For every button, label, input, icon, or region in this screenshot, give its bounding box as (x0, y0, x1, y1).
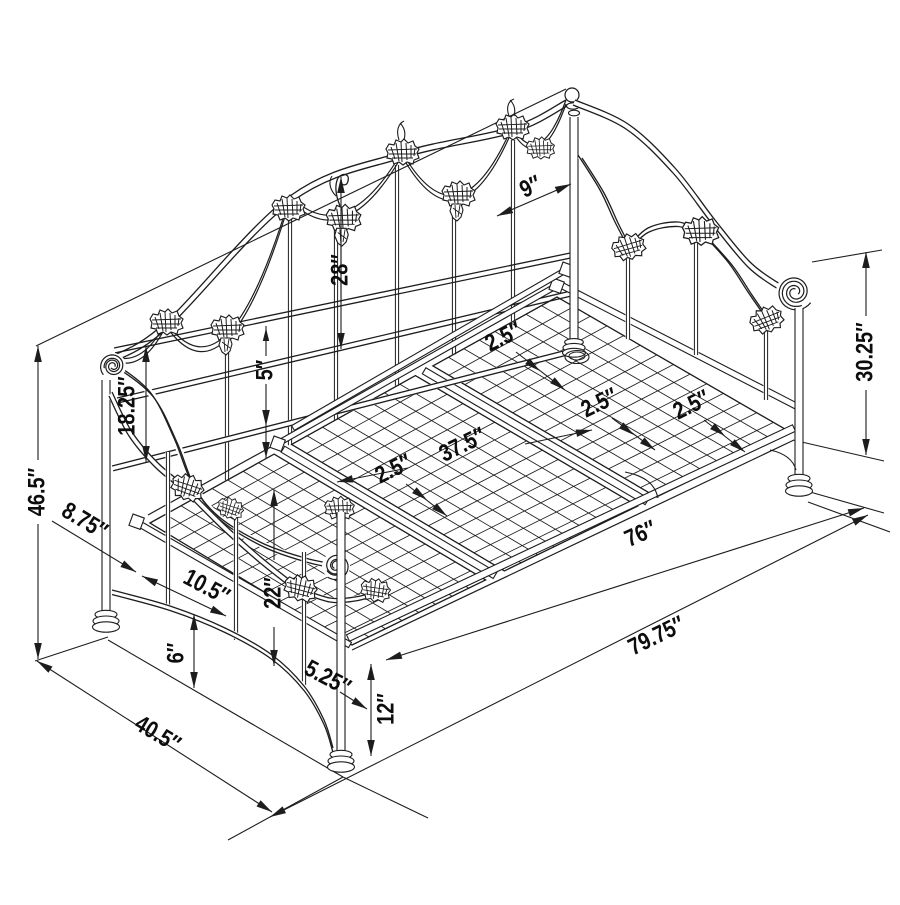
svg-text:18.25″: 18.25″ (113, 376, 140, 436)
svg-text:5″: 5″ (251, 359, 278, 380)
svg-text:22″: 22″ (259, 577, 286, 609)
svg-text:30.25″: 30.25″ (851, 322, 878, 382)
svg-text:46.5″: 46.5″ (23, 467, 50, 516)
svg-text:28″: 28″ (326, 254, 353, 286)
svg-text:6″: 6″ (162, 642, 189, 663)
svg-text:12″: 12″ (372, 693, 399, 725)
